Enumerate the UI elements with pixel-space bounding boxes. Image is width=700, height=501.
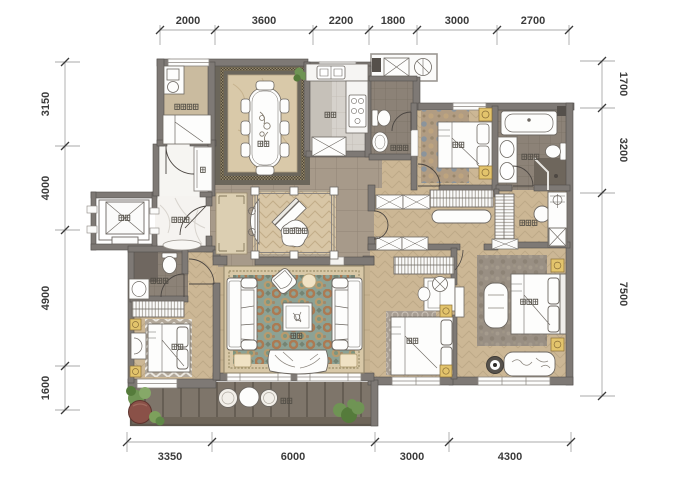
svg-text:7500: 7500 xyxy=(617,282,629,306)
svg-text:3350: 3350 xyxy=(158,451,182,463)
svg-text:3000: 3000 xyxy=(400,451,424,463)
svg-text:2700: 2700 xyxy=(521,15,545,27)
svg-text:1800: 1800 xyxy=(381,15,405,27)
svg-text:1600: 1600 xyxy=(40,376,52,400)
svg-text:3000: 3000 xyxy=(445,15,469,27)
svg-text:3600: 3600 xyxy=(252,15,276,27)
svg-text:4000: 4000 xyxy=(40,176,52,200)
svg-text:3150: 3150 xyxy=(40,92,52,116)
svg-text:2000: 2000 xyxy=(176,15,200,27)
svg-text:6000: 6000 xyxy=(281,451,305,463)
svg-text:3200: 3200 xyxy=(617,138,629,162)
svg-text:2200: 2200 xyxy=(329,15,353,27)
svg-text:4900: 4900 xyxy=(40,286,52,310)
svg-text:1700: 1700 xyxy=(617,72,629,96)
svg-text:4300: 4300 xyxy=(498,451,522,463)
